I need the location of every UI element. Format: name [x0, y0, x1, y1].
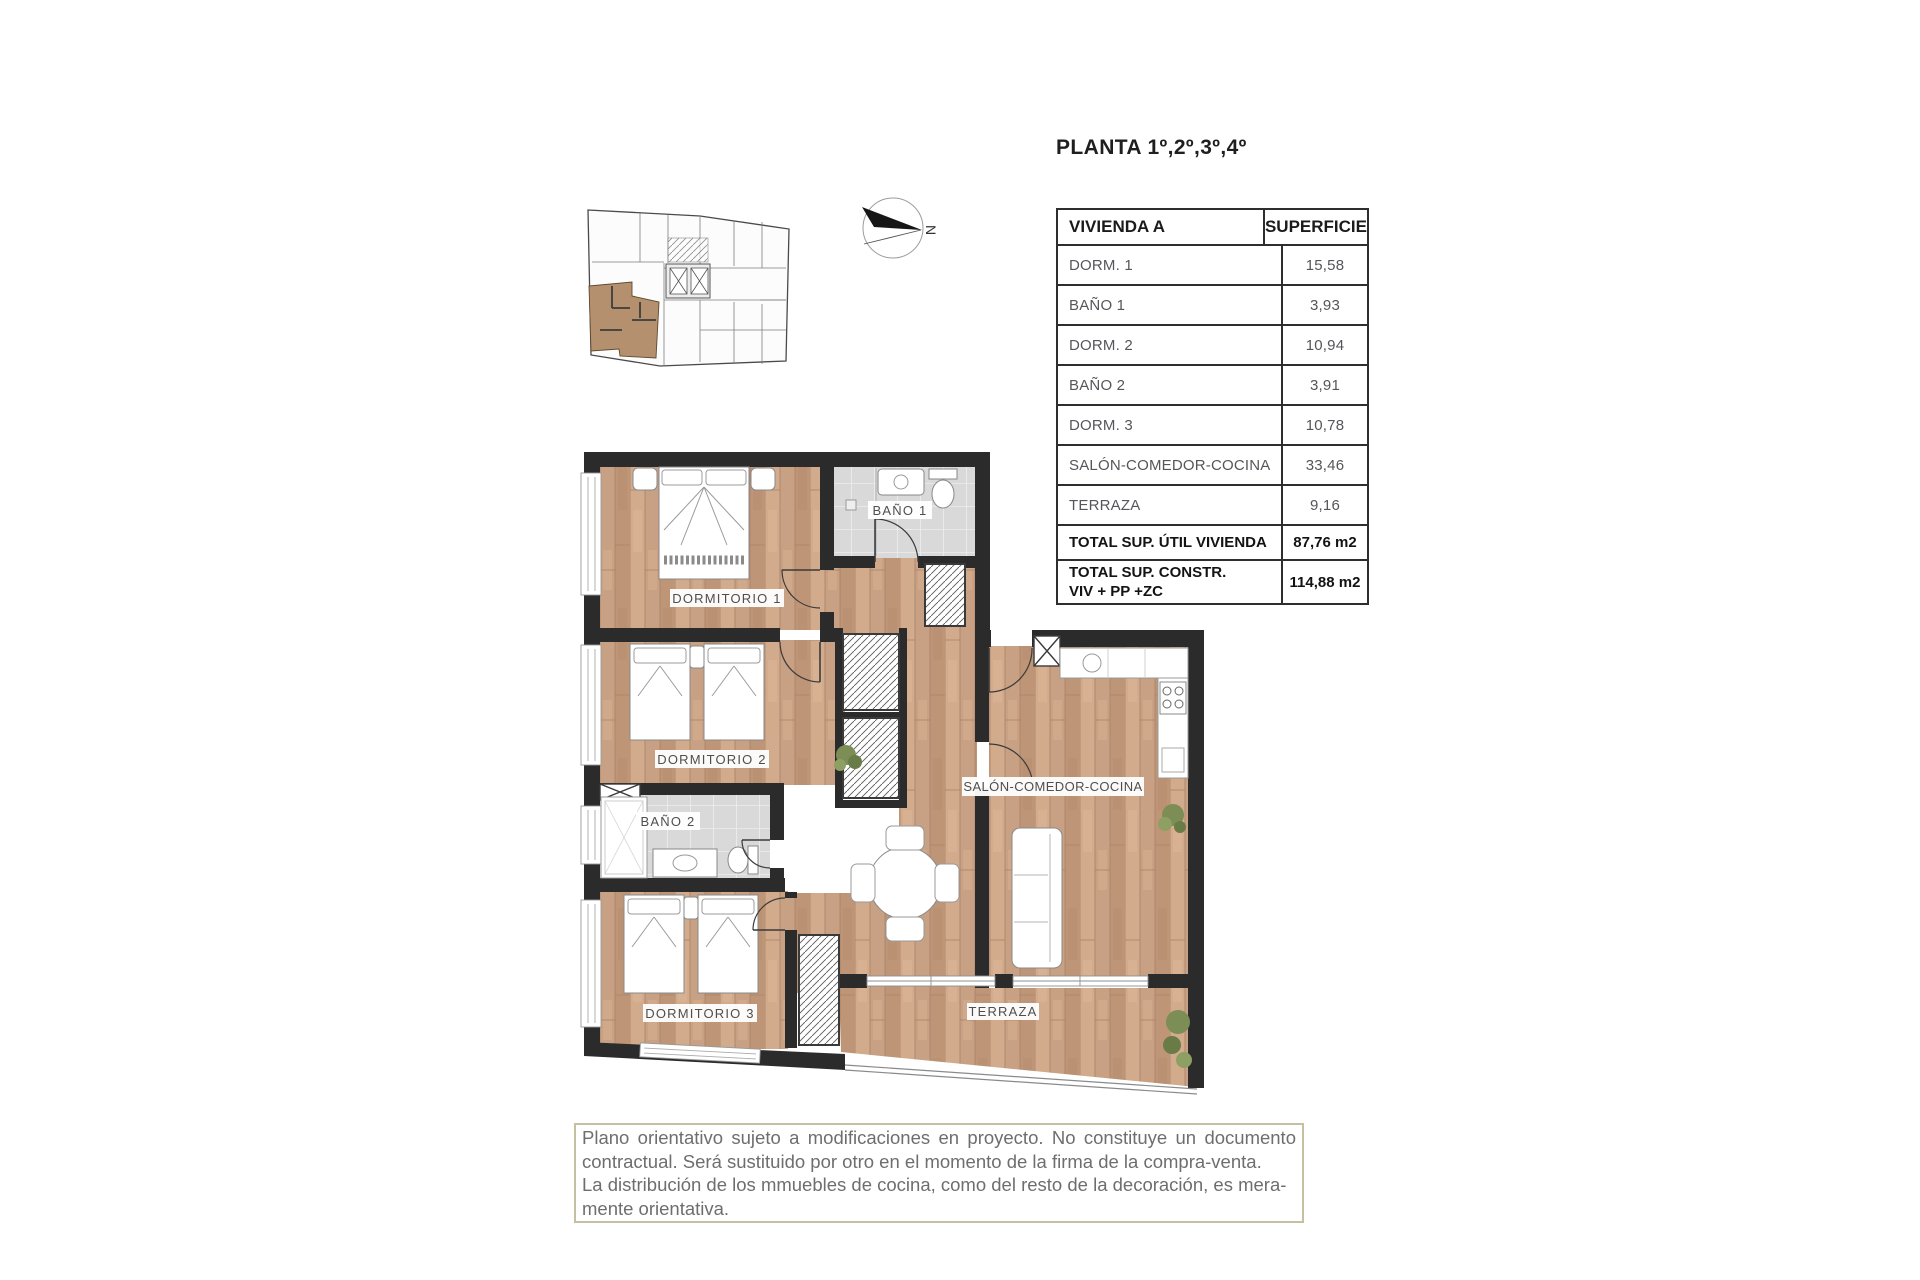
row-label: BAÑO 2	[1058, 366, 1283, 404]
row-value: 15,58	[1283, 246, 1367, 284]
dining-table-icon	[869, 847, 941, 919]
table-header-row: VIVIENDA A SUPERFICIE	[1058, 210, 1367, 244]
window-bath2	[581, 806, 601, 864]
north-compass: N	[862, 198, 939, 258]
table-row: DORM. 1 15,58	[1058, 244, 1367, 284]
table-row: BAÑO 2 3,91	[1058, 364, 1367, 404]
hall-wardrobe	[925, 564, 965, 626]
row-value: 3,91	[1283, 366, 1367, 404]
row-value: 9,16	[1283, 486, 1367, 524]
table-row: TERRAZA 9,16	[1058, 484, 1367, 524]
total-label: TOTAL SUP. CONSTR. VIV + PP +ZC	[1058, 561, 1283, 603]
compass-needle-icon	[862, 207, 922, 230]
room-label-dormitorio-2: DORMITORIO 2	[657, 752, 767, 767]
sofa-icon	[1012, 828, 1062, 968]
row-label: TERRAZA	[1058, 486, 1283, 524]
total-label: TOTAL SUP. ÚTIL VIVIENDA	[1058, 526, 1283, 559]
window-dorm1	[581, 473, 601, 595]
table-total-constr-row: TOTAL SUP. CONSTR. VIV + PP +ZC 114,88 m…	[1058, 559, 1367, 603]
total-value: 87,76 m2	[1283, 526, 1367, 559]
total-value: 114,88 m2	[1283, 561, 1367, 603]
row-value: 3,93	[1283, 286, 1367, 324]
row-label: DORM. 3	[1058, 406, 1283, 444]
area-table: VIVIENDA A SUPERFICIE DORM. 1 15,58 BAÑO…	[1056, 208, 1369, 605]
disclaimer-line: La distribución de los mmuebles de cocin…	[582, 1173, 1296, 1197]
page-title: PLANTA 1º,2º,3º,4º	[1056, 136, 1247, 160]
floor-plan-page: N	[0, 0, 1920, 1280]
row-label: BAÑO 1	[1058, 286, 1283, 324]
dorm3-wardrobe	[799, 935, 839, 1045]
table-header-superficie: SUPERFICIE	[1265, 210, 1367, 244]
disclaimer-line: Plano orientativo sujeto a modificacione…	[582, 1126, 1296, 1150]
plans-graphic: N	[0, 0, 1920, 1280]
disclaimer-line: mente orientativa.	[582, 1197, 1296, 1221]
terrace-floor	[839, 988, 1196, 1087]
room-label-dormitorio-3: DORMITORIO 3	[645, 1006, 755, 1021]
total-label-line2: VIV + PP +ZC	[1069, 582, 1163, 601]
row-label: DORM. 1	[1058, 246, 1283, 284]
window-dorm3	[581, 900, 601, 1027]
table-row: SALÓN-COMEDOR-COCINA 33,46	[1058, 444, 1367, 484]
row-value: 10,78	[1283, 406, 1367, 444]
table-row: DORM. 2 10,94	[1058, 324, 1367, 364]
row-label: SALÓN-COMEDOR-COCINA	[1058, 446, 1283, 484]
building-key-plan	[588, 210, 789, 366]
disclaimer-box: Plano orientativo sujeto a modificacione…	[574, 1123, 1304, 1223]
stairs	[668, 238, 708, 262]
room-label-bano-1: BAÑO 1	[873, 503, 928, 518]
table-total-util-row: TOTAL SUP. ÚTIL VIVIENDA 87,76 m2	[1058, 524, 1367, 559]
compass-north-label: N	[923, 225, 939, 235]
table-row: BAÑO 1 3,93	[1058, 284, 1367, 324]
table-header-vivienda: VIVIENDA A	[1058, 210, 1265, 244]
disclaimer-line: contractual. Será sustituido por otro en…	[582, 1150, 1296, 1174]
row-label: DORM. 2	[1058, 326, 1283, 364]
window-dorm2	[581, 645, 601, 765]
total-label-line1: TOTAL SUP. CONSTR.	[1069, 563, 1226, 582]
room-label-salon: SALÓN-COMEDOR-COCINA	[963, 779, 1142, 794]
room-label-terraza: TERRAZA	[968, 1004, 1037, 1019]
wardrobe-1	[843, 634, 899, 710]
row-value: 33,46	[1283, 446, 1367, 484]
table-row: DORM. 3 10,78	[1058, 404, 1367, 444]
room-label-bano-2: BAÑO 2	[641, 814, 696, 829]
row-value: 10,94	[1283, 326, 1367, 364]
room-label-dormitorio-1: DORMITORIO 1	[672, 591, 782, 606]
